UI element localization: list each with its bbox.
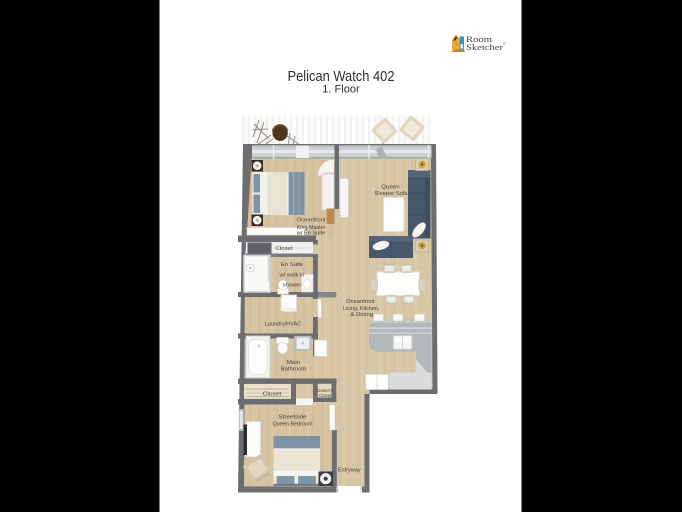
svg-text:Oceanfront: Oceanfront xyxy=(346,299,375,305)
svg-text:Entryway: Entryway xyxy=(338,468,361,474)
svg-text:Closet: Closet xyxy=(319,393,332,398)
svg-text:Owner's: Owner's xyxy=(317,388,333,393)
svg-text:Closet: Closet xyxy=(263,391,282,397)
svg-text:Sketcher: Sketcher xyxy=(466,42,503,52)
svg-text:Main: Main xyxy=(287,360,301,366)
svg-text:Pelican Watch 402: Pelican Watch 402 xyxy=(288,68,395,85)
svg-text:Bathroom: Bathroom xyxy=(281,367,307,373)
svg-text:En Suite: En Suite xyxy=(281,262,304,268)
svg-text:w/ walk in: w/ walk in xyxy=(279,273,305,279)
svg-text:Living, Kitchen,: Living, Kitchen, xyxy=(343,306,380,312)
svg-text:w/ En Suite: w/ En Suite xyxy=(296,231,325,237)
svg-text:Queen: Queen xyxy=(381,184,400,190)
svg-text:shower: shower xyxy=(283,283,302,289)
svg-text:1. Floor: 1. Floor xyxy=(322,84,360,96)
svg-text:Closet: Closet xyxy=(276,246,293,252)
svg-text:& Dining: & Dining xyxy=(350,312,373,318)
svg-text:Laundry/HVAC: Laundry/HVAC xyxy=(265,322,302,328)
svg-text:Streetside: Streetside xyxy=(279,415,307,421)
svg-text:Sleeper Sofa: Sleeper Sofa xyxy=(375,191,409,197)
svg-text:Queen Bedroom: Queen Bedroom xyxy=(273,421,313,427)
svg-text:Oceanfront: Oceanfront xyxy=(297,218,326,224)
